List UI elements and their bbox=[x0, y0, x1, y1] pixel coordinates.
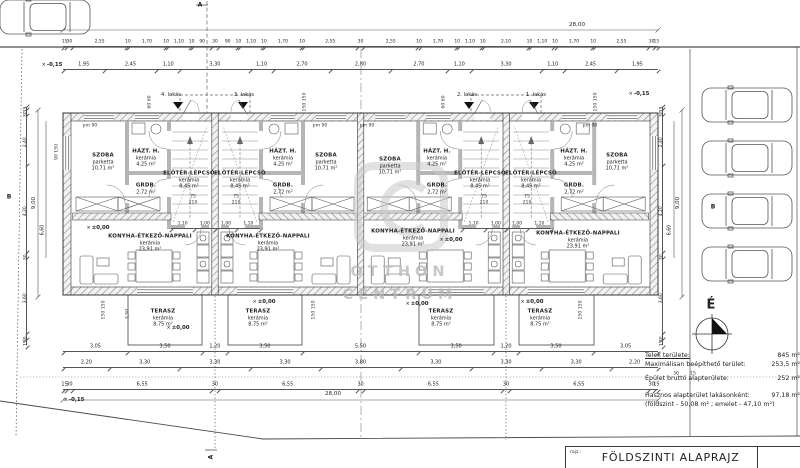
watermark-text: OTTHON bbox=[350, 264, 449, 280]
title-block-cell bbox=[757, 447, 800, 468]
window-size-note: 150 150 bbox=[579, 301, 584, 320]
window-size-note: 150 150 bbox=[594, 93, 599, 112]
dim-chain-bottom-mid: 2,203,303,303,303,803,303,303,302,20 bbox=[63, 360, 658, 368]
unit-label-1: 1. lakás bbox=[526, 92, 546, 98]
room-label-grdb: GRDB.2,72 m² bbox=[427, 183, 447, 196]
net-area-value: 97,18 m² bbox=[771, 392, 800, 400]
window-size-note: 60 60 bbox=[148, 95, 153, 108]
room-label-szoba: SZOBAparketta10,71 m² bbox=[379, 156, 402, 175]
level-mark-zero: ×±0,00 bbox=[252, 299, 275, 305]
north-compass-icon bbox=[692, 314, 732, 354]
room-label-hazt: HÁZT. H.kerámia4,25 m² bbox=[269, 148, 297, 167]
dim-total-bottom: 28,00 bbox=[325, 391, 341, 397]
watermark-text: CENTRUM bbox=[343, 287, 458, 303]
room-label-grdb: GRDB.2,72 m² bbox=[564, 183, 584, 196]
parapet-note: pm 90 bbox=[83, 123, 98, 129]
room-label-eloter: ELŐTÉR-LÉPCSŐkerámia8,45 m² bbox=[505, 170, 557, 189]
window-size-note: 150 150 bbox=[303, 93, 308, 112]
dim-chain-terrace: 3,053,501,203,505,503,501,203,503,05 bbox=[63, 344, 658, 352]
parapet-note: pm 90 bbox=[360, 123, 375, 129]
door-size-note: 75210 bbox=[189, 195, 198, 206]
site-data-block: Telek területe:845 m² Maximálisan beépít… bbox=[645, 352, 800, 409]
net-area-label: Hasznos alapterület lakásonként: bbox=[645, 392, 750, 400]
level-mark-minus: ×-0,15 bbox=[629, 91, 650, 97]
room-label-terasz: TERASZkerámia8,75 m² bbox=[429, 308, 454, 327]
floor-plan-sheet: 15302,55101,70101,1010903090101,10101,70… bbox=[0, 0, 800, 468]
dim-chain-top-fine: 15302,55101,70101,1010903090101,10101,70… bbox=[63, 39, 658, 47]
entry-arrow-icon bbox=[464, 102, 474, 109]
plot-area-value: 845 m² bbox=[777, 352, 800, 360]
dim-chain-left: 15302,404,20303,603015 bbox=[26, 108, 34, 345]
level-mark-zero: ×±0,00 bbox=[439, 237, 462, 243]
level-mark-zero: ×±0,00 bbox=[86, 225, 109, 231]
unit-label-2: 2. lakás bbox=[457, 92, 477, 98]
dim-sub-right: 6,60 bbox=[668, 225, 673, 236]
room-label-terasz: TERASZkerámia8,75 m² bbox=[528, 308, 553, 327]
dim-chain-bottom-fine: 15306,55306,55306,55306,553015 bbox=[63, 382, 658, 390]
drawing-title: FÖLDSZINTI ALAPRAJZ bbox=[584, 451, 757, 464]
dim-chain-core-left: 1,101,001,001,10 bbox=[171, 221, 260, 229]
dim-chain-top-main: 1,952,451,103,301,102,702,802,701,103,30… bbox=[63, 62, 658, 70]
window-size-note: 90 150 bbox=[55, 144, 60, 160]
drawing-label: rajz : bbox=[570, 447, 581, 455]
level-mark-minus: ×-0,15 bbox=[64, 397, 85, 403]
north-label: É bbox=[707, 298, 716, 313]
entry-arrow-icon bbox=[238, 102, 248, 109]
room-label-hazt: HÁZT. H.kerámia4,25 m² bbox=[132, 148, 160, 167]
unit-label-3: 3. lakás bbox=[234, 92, 254, 98]
window-size-note: 150 150 bbox=[102, 301, 107, 320]
room-label-konyha: KONYHA-ÉTKEZŐ-NAPPALIkerámia23,91 m² bbox=[108, 233, 192, 252]
entry-arrow-icon bbox=[173, 102, 183, 109]
net-area-breakdown: (földszint - 50,08 m² ; emelet - 47,10 m… bbox=[645, 401, 775, 408]
section-marker-a: A bbox=[208, 455, 215, 460]
entrance-canopies bbox=[173, 95, 541, 113]
dim-chain-core-right: 1,101,001,001,10 bbox=[462, 221, 551, 229]
max-buildable-label: Maximálisan beépíthető terület: bbox=[645, 361, 746, 369]
level-mark-minus: ×-0,15 bbox=[42, 62, 63, 68]
room-label-eloter: ELŐTÉR-LÉPCSŐkerámia8,45 m² bbox=[214, 170, 266, 189]
door-size-note: 75210 bbox=[480, 195, 489, 206]
door-size-note: 75210 bbox=[523, 195, 532, 206]
room-label-grdb: GRDB.2,72 m² bbox=[136, 183, 156, 196]
section-marker-a: A bbox=[198, 2, 203, 9]
car-icon bbox=[0, 0, 90, 36]
room-label-szoba: SZOBAparketta10,71 m² bbox=[606, 152, 629, 171]
door-size-note: 75210 bbox=[232, 195, 241, 206]
parking-space-label: B bbox=[711, 204, 716, 211]
room-label-terasz: TERASZkerámia8,75 m² bbox=[246, 308, 271, 327]
room-label-konyha: KONYHA-ÉTKEZŐ-NAPPALIkerámia23,91 m² bbox=[226, 233, 310, 252]
plot-area-label: Telek területe: bbox=[645, 352, 690, 360]
gross-area-value: 252 m² bbox=[777, 375, 800, 383]
entry-arrow-icon bbox=[529, 102, 539, 109]
room-label-hazt: HÁZT. H.kerámia4,25 m² bbox=[560, 148, 588, 167]
dim-total-right: 9,00 bbox=[675, 197, 681, 209]
unit-label-4: 4. lakás bbox=[161, 92, 181, 98]
title-block: rajz : FÖLDSZINTI ALAPRAJZ bbox=[565, 446, 800, 468]
room-label-eloter: ELŐTÉR-LÉPCSŐkerámia8,45 m² bbox=[454, 170, 506, 189]
max-buildable-value: 253,5 m² bbox=[771, 361, 800, 369]
parapet-note: pm 90 bbox=[583, 123, 598, 129]
room-label-szoba: SZOBAparketta10,71 m² bbox=[92, 152, 115, 171]
parapet-note: pm 90 bbox=[313, 123, 328, 129]
section-marker-b: B bbox=[7, 194, 12, 201]
gross-area-label: Épület bruttó alapterülete: bbox=[645, 375, 729, 383]
room-label-szoba: SZOBAparketta10,71 m² bbox=[315, 152, 338, 171]
window-size-note: 60 60 bbox=[442, 95, 447, 108]
dim-total-left: 9,00 bbox=[31, 197, 37, 209]
room-label-grdb: GRDB.2,72 m² bbox=[273, 183, 293, 196]
level-mark-zero: ×±0,00 bbox=[520, 299, 543, 305]
dim-total-top: 28,00 bbox=[569, 22, 585, 28]
room-label-eloter: ELŐTÉR-LÉPCSŐkerámia8,45 m² bbox=[163, 170, 215, 189]
room-label-konyha: KONYHA-ÉTKEZŐ-NAPPALIkerámia23,91 m² bbox=[536, 230, 620, 249]
dim-sub-left: 6,60 bbox=[41, 225, 46, 236]
room-label-hazt: HÁZT. H.kerámia4,25 m² bbox=[423, 148, 451, 167]
window-size-note: 150 150 bbox=[312, 301, 317, 320]
dim-terrace-depth: 2,50 bbox=[126, 309, 131, 319]
level-mark-zero: ×±0,00 bbox=[166, 325, 189, 331]
